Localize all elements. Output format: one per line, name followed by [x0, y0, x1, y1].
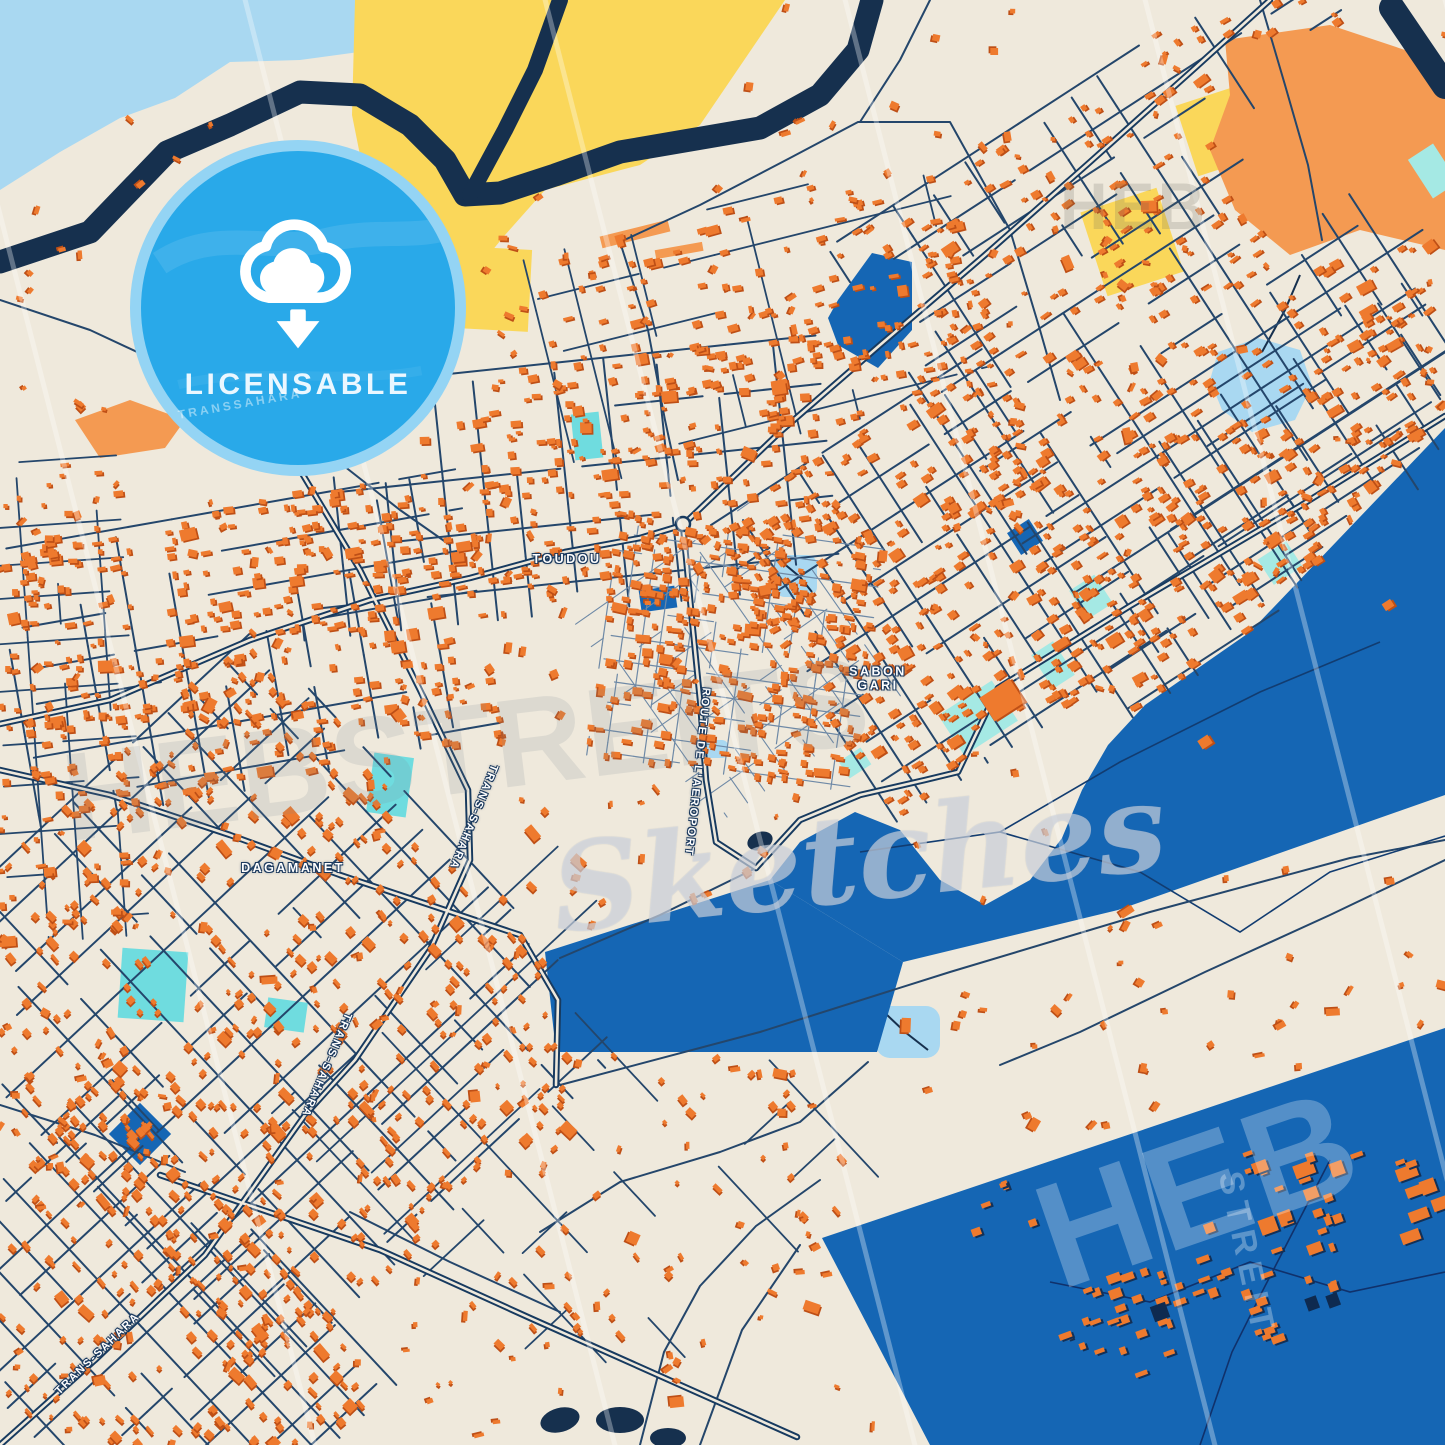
- district-label: SABON GARI: [849, 665, 907, 694]
- licensable-badge[interactable]: LICENSABLE: [130, 140, 466, 476]
- road-label: TRANS-SAHARA: [53, 1310, 143, 1397]
- map-poster: HEB HEBSTREITS Sketches HEB STREIT TOUDO…: [0, 0, 1445, 1445]
- road-label: ROUTE DE L'AEROPORT: [682, 687, 712, 857]
- road-label: TRANS-SAHARA: [446, 762, 500, 871]
- district-label: DAGAMANET: [241, 861, 345, 875]
- road-label: TRANS-SAHARA: [298, 1011, 354, 1120]
- district-label: TOUDOU: [533, 552, 602, 566]
